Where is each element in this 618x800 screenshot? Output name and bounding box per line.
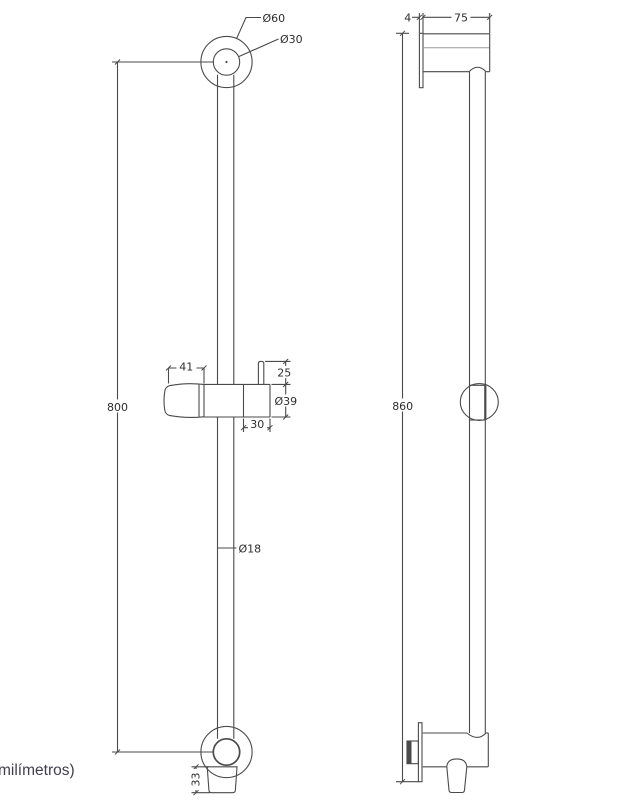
slide-bar-front	[218, 75, 234, 739]
top-center-mark	[225, 61, 227, 63]
top-bracket-body	[423, 34, 490, 72]
slider-ring-side	[460, 384, 498, 421]
dim-label-overall-height: 860	[392, 400, 413, 413]
bottom-bracket-body	[423, 733, 489, 767]
bottom-ball-joint	[213, 739, 239, 765]
top-wall-plate	[419, 33, 423, 87]
dim-label-grip-width: 41	[179, 361, 193, 374]
side-dimensions: 4 75 860	[391, 11, 493, 784]
bottom-wall-plate	[407, 723, 422, 782]
shower-slide-bar-drawing: 800 Ø60 Ø30 41 25	[0, 0, 618, 800]
hose-outlet-side	[447, 759, 467, 793]
side-view: 4 75 860	[391, 11, 499, 792]
dim-label-outer-diameter: Ø60	[263, 12, 286, 25]
dim-label-outlet-height: 33	[190, 773, 203, 787]
water-inlet-face	[407, 741, 412, 764]
front-view: 800 Ø60 Ø30 41 25	[105, 12, 303, 795]
dim-label-knob-width: 30	[250, 418, 264, 431]
dim-label-wall-offset: 75	[454, 11, 468, 24]
slide-bar-side	[470, 72, 486, 733]
leader-inner-diameter	[239, 39, 279, 57]
dim-label-post-height: 25	[277, 367, 291, 380]
dim-label-bar-diameter: Ø18	[239, 542, 262, 555]
bar-cap-arc-top	[469, 67, 486, 71]
dim-label-plate-thickness: 4	[404, 11, 411, 24]
hose-outlet-front	[207, 767, 237, 793]
technical-drawing-page: 800 Ø60 Ø30 41 25	[0, 0, 618, 800]
dim-label-holder-diameter: Ø39	[274, 395, 297, 408]
units-note: milímetros)	[0, 762, 75, 780]
dim-label-bar-length: 800	[107, 401, 128, 414]
bar-cap-arc-bottom	[467, 733, 486, 737]
dim-label-inner-diameter: Ø30	[280, 33, 303, 46]
holder-grip-outline	[164, 384, 204, 418]
locking-post	[258, 361, 263, 384]
leader-outer-diameter	[237, 18, 261, 39]
